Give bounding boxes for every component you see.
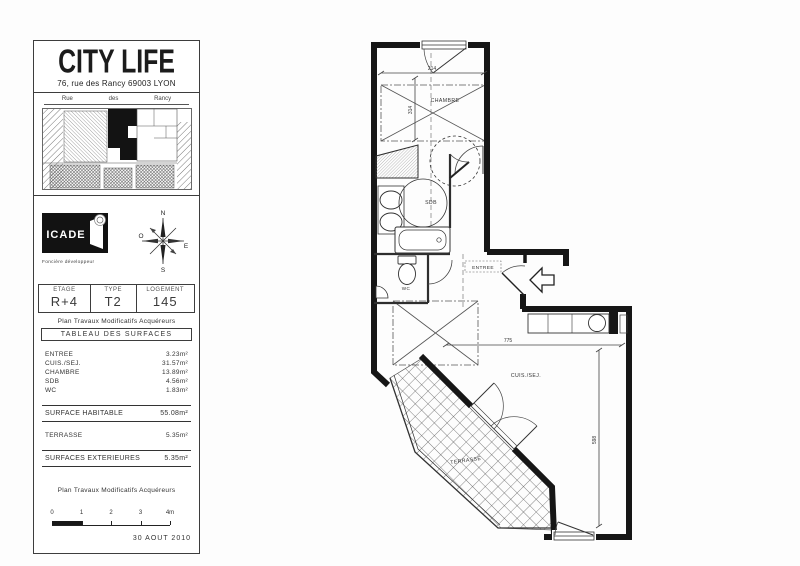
washbasin-1 (380, 191, 402, 209)
construction-axes (431, 45, 463, 307)
surface-row-entree: ENTREE 3.23m² (45, 350, 188, 359)
site-map-south-block-2 (104, 168, 132, 188)
surface-exterieures-row: SURFACES EXTERIEURES 5.35m² (42, 450, 191, 467)
site-map-drawing (42, 108, 192, 190)
entrance-arrow-icon (530, 268, 554, 292)
etage-header: ETAGE (39, 287, 90, 293)
site-map-building-outline (137, 109, 177, 161)
scale-tick-4: 4m (166, 510, 174, 516)
brand-address: 76, rue des Rancy 69003 LYON (36, 79, 197, 88)
scale-tick-1: 1 (80, 510, 83, 516)
icade-logo: ICADE Foncière développeur (42, 211, 124, 269)
scanned-plan-page: CITY LIFE 76, rue des Rancy 69003 LYON R… (0, 0, 800, 566)
icade-emblem-icon (95, 215, 106, 226)
site-map-south-block-1 (50, 165, 100, 188)
scale-tick-3: 3 (139, 510, 142, 516)
surface-row-wc: WC 1.83m² (45, 386, 188, 395)
logement-value: 145 (137, 294, 194, 309)
type-value: T2 (91, 294, 136, 309)
modification-zone-chambre (381, 85, 485, 141)
unit-type-cell: TYPE T2 (90, 285, 136, 312)
brand-section: CITY LIFE 76, rue des Rancy 69003 LYON (34, 41, 199, 93)
site-map-hatch-right (177, 122, 191, 189)
surface-table-title: TABLEAU DES SURFACES (41, 328, 192, 341)
footer-note: Plan Travaux Modificatifs Acquéreurs (34, 487, 199, 494)
room-label-sejour: CUIS./SEJ. (511, 373, 541, 379)
room-label-entree: ENTREE (472, 265, 494, 271)
unit-info-table: ETAGE R+4 TYPE T2 LOGEMENT 145 (38, 284, 195, 313)
icade-tagline: Foncière développeur (42, 259, 95, 265)
compass-rose-icon: N O E S (137, 207, 189, 273)
scale-tick-0: 0 (50, 510, 53, 516)
kitchen-wall-stub (609, 312, 618, 334)
surface-rows: ENTREE 3.23m² CUIS./SEJ. 31.57m² CHAMBRE… (45, 350, 188, 395)
dim-chambre-height: 314 (408, 106, 414, 115)
unit-logement-cell: LOGEMENT 145 (136, 285, 194, 312)
turning-circle-sdb (399, 179, 447, 227)
site-map-block-dense (64, 111, 107, 162)
dim-sejour-width: 775 (504, 338, 513, 344)
dim-sejour-height: 598 (592, 436, 598, 445)
sejour-window (552, 522, 596, 543)
surface-terrasse-row: TERRASSE 5.35m² (45, 431, 188, 440)
interior-doors (428, 146, 483, 284)
developer-section: ICADE Foncière développeur (34, 196, 199, 282)
etage-value: R+4 (39, 294, 90, 309)
street-word-2: des (109, 96, 119, 102)
scale-bar: 0 1 2 3 4m (52, 510, 170, 529)
room-label-chambre: CHAMBRE (431, 98, 460, 104)
street-word-3: Rancy (154, 96, 171, 102)
surface-row-sdb: SDB 4.56m² (45, 377, 188, 386)
kitchen-nook (620, 315, 627, 333)
scale-tick-2: 2 (109, 510, 112, 516)
compass-south-label: S (161, 267, 166, 273)
compass-north-label: N (161, 210, 166, 217)
compass-east-label: E (184, 243, 189, 250)
plan-note: Plan Travaux Modificatifs Acquéreurs (34, 318, 199, 325)
compass-west-label: O (138, 233, 143, 240)
surface-row-chambre: CHAMBRE 13.89m² (45, 368, 188, 377)
logement-header: LOGEMENT (137, 287, 194, 293)
modification-zone-cuisine (393, 301, 478, 365)
type-header: TYPE (91, 287, 136, 293)
entrance-door (502, 266, 525, 296)
dim-chambre-width: 214 (428, 66, 437, 72)
icade-logo-text: ICADE (46, 229, 85, 241)
brand-logo: CITY LIFE (42, 42, 190, 80)
site-map-section: Rue des Rancy (34, 93, 199, 196)
toilet-bowl (399, 264, 416, 285)
surface-habitable-row: SURFACE HABITABLE 55.08m² (42, 405, 191, 422)
unit-etage-cell: ETAGE R+4 (39, 285, 90, 312)
room-label-wc: WC (402, 286, 411, 291)
street-label-row: Rue des Rancy (44, 96, 189, 105)
kitchen-counter (528, 314, 609, 333)
corner-sink (376, 286, 388, 298)
floor-plan: 214 314 775 598 CHAMBRE SDB WC ENTREE CU… (358, 28, 658, 558)
site-map-south-block-3 (136, 165, 174, 188)
title-block: CITY LIFE 76, rue des Rancy 69003 LYON R… (33, 40, 200, 554)
room-label-sdb: SDB (425, 200, 437, 206)
street-word-1: Rue (62, 96, 73, 102)
toilet-tank (398, 256, 416, 264)
surface-row-sejour: CUIS./SEJ. 31.57m² (45, 359, 188, 368)
plan-date: 30 AOUT 2010 (42, 535, 191, 542)
closet (376, 145, 418, 178)
turning-circle-hall (430, 136, 480, 186)
